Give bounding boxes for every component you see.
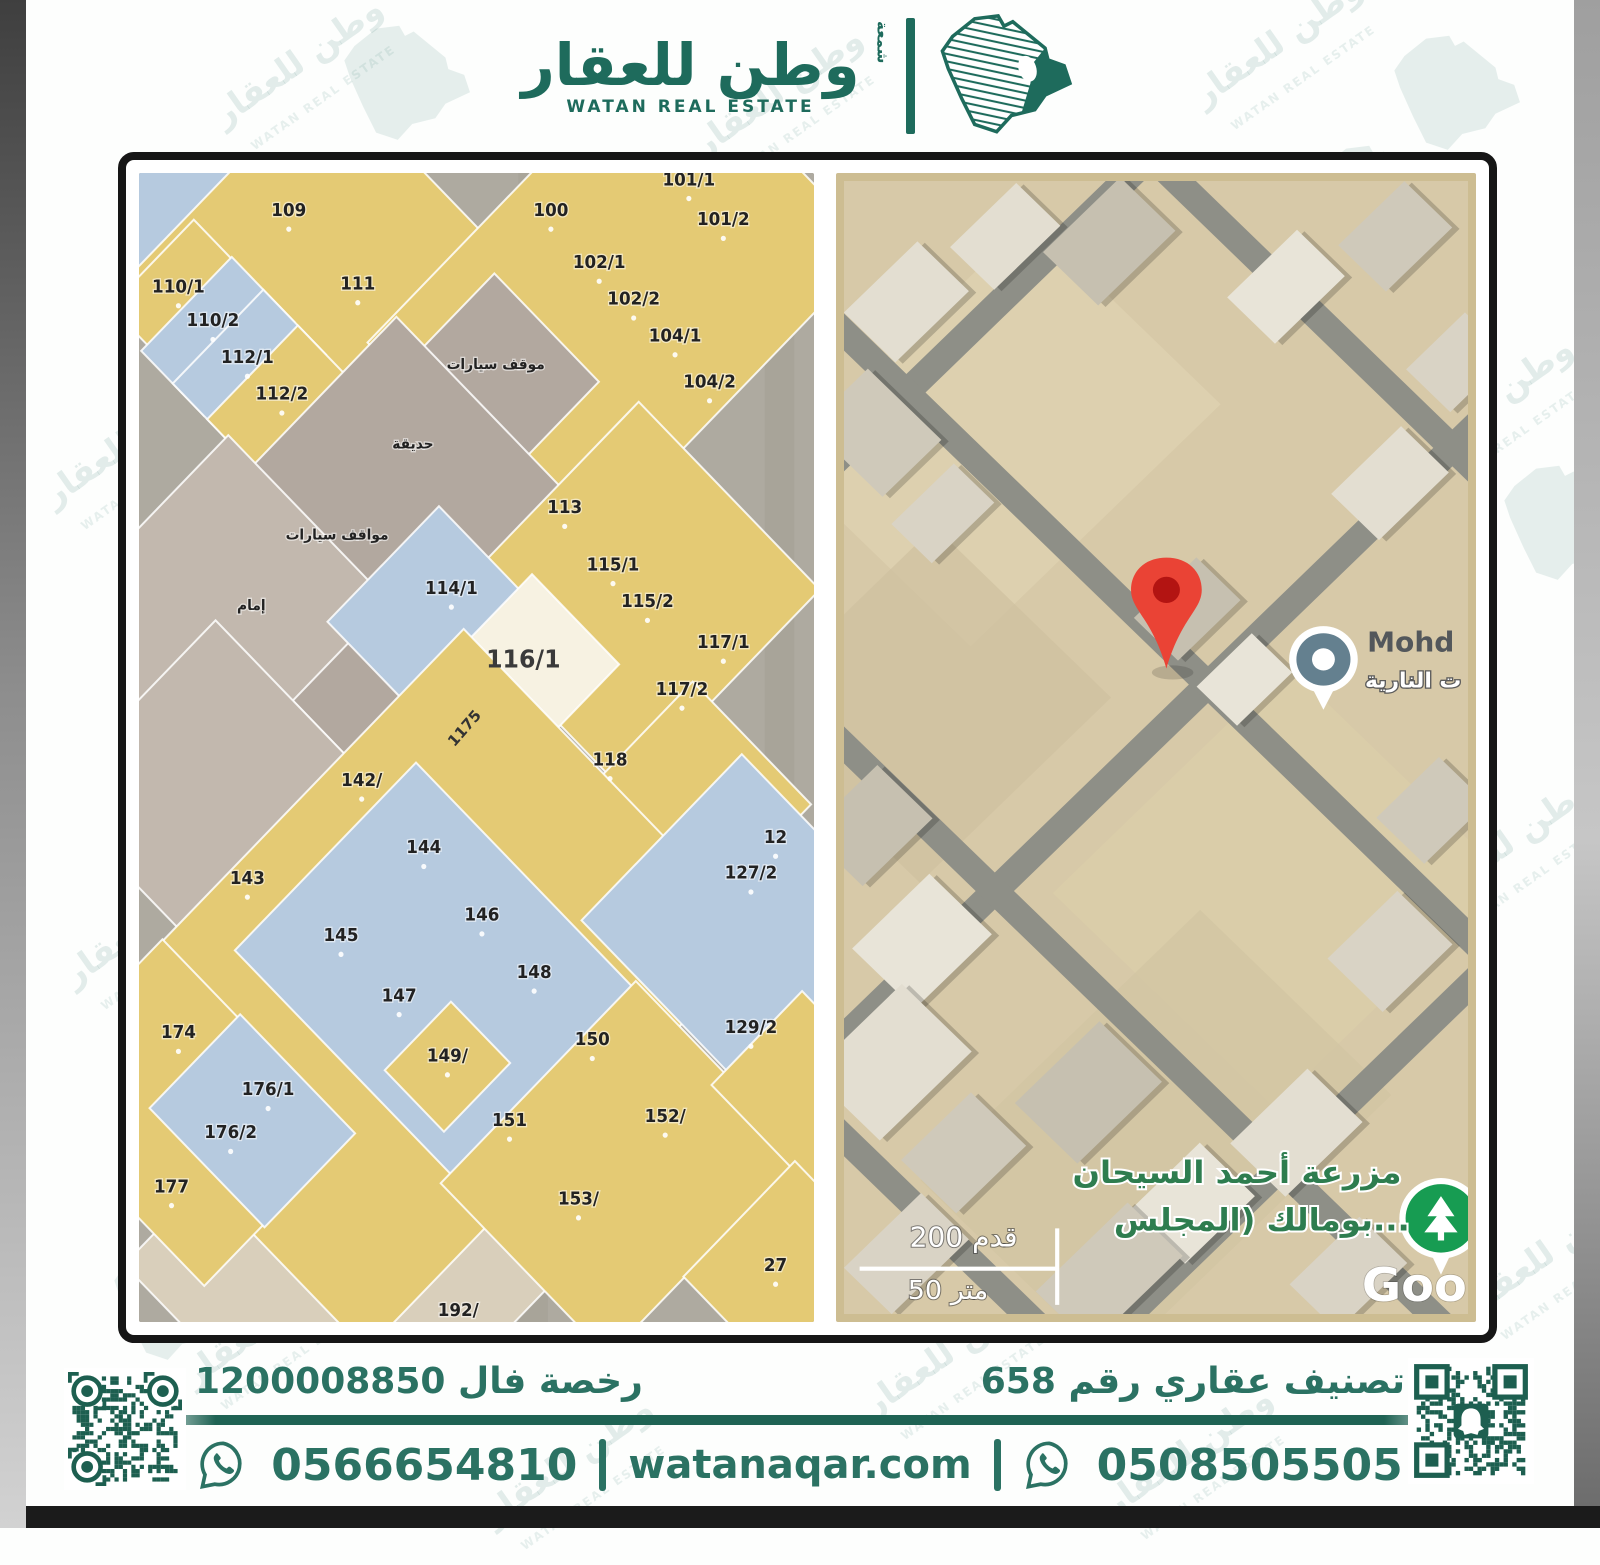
footer-row-info: رخصة فال 1200008850 تصنيف عقاري رقم 658: [26, 1361, 1574, 1402]
brand-english: WATAN REAL ESTATE: [521, 97, 859, 117]
parcel-label: 112/2: [256, 384, 309, 404]
phone-right: 0508505505: [1097, 1440, 1403, 1491]
parcel-label: 147: [382, 986, 417, 1006]
license-text: رخصة فال 1200008850: [195, 1361, 643, 1402]
parcel-label: 100: [533, 201, 568, 221]
parcel-label: 110/2: [187, 311, 240, 331]
saudi-map-logo: [929, 10, 1079, 142]
parcel-label: 101/1: [663, 173, 716, 190]
area-label: حديقة: [392, 437, 433, 453]
right-edge-strip: [1574, 0, 1600, 1528]
footer-divider: [136, 1415, 1464, 1425]
map-frame: 109100101/1101/2111110/1110/2112/1112/21…: [118, 152, 1497, 1343]
separator: [994, 1439, 1001, 1491]
parcel-label: 142/: [341, 771, 383, 791]
parcel-label: 114/1: [425, 579, 478, 599]
qr-code-left: [64, 1368, 186, 1490]
parcel-label: 110/1: [152, 277, 205, 297]
poi-label-en: Mohd: [1367, 626, 1454, 658]
parcel-label: 104/2: [683, 372, 736, 392]
satellite-map-border: Mohdت الناريةمزرعة أحمد السيحانبومالك (ا…: [836, 173, 1476, 1322]
parcel-label: 152/: [645, 1107, 687, 1127]
parcel-label: 117/1: [697, 633, 750, 653]
footer: رخصة فال 1200008850 تصنيف عقاري رقم 658 …: [26, 1343, 1574, 1506]
parcel-label: 150: [575, 1030, 610, 1050]
parcel-label: 111: [340, 274, 375, 294]
satellite-map: Mohdت الناريةمزرعة أحمد السيحانبومالك (ا…: [844, 181, 1468, 1314]
parcel-label: 127/2: [725, 863, 778, 883]
poi-label-ar: ت النارية: [1365, 669, 1461, 694]
scale-meters: 50 متر: [908, 1275, 989, 1305]
parcel-label: 116/1: [486, 645, 560, 673]
parcel-label: 174: [161, 1023, 196, 1043]
whatsapp-icon: [1023, 1439, 1075, 1491]
parcel-label: 113: [547, 498, 582, 518]
area-label: موقف سيارات: [447, 357, 545, 373]
parcel-label: 129/2: [725, 1018, 778, 1038]
classification-text: تصنيف عقاري رقم 658: [981, 1361, 1405, 1402]
parcel-label: 177: [154, 1177, 189, 1197]
area-label: مواقف سيارات: [286, 527, 389, 543]
parcel-label: 149/: [427, 1046, 469, 1066]
parcel-label: 151: [492, 1111, 527, 1131]
parcel-label: 117/2: [656, 680, 709, 700]
separator: [599, 1439, 606, 1491]
parcel-label: 144: [406, 838, 441, 858]
farm-label-line2: بومالك (المجلس...: [1114, 1203, 1410, 1238]
parcel-label: 176/2: [204, 1123, 257, 1143]
parcel-label: 145: [324, 926, 359, 946]
logo-vertical-text: شمعة: [874, 21, 892, 131]
parcel-label: 112/1: [221, 348, 274, 368]
logo-divider-bar: [906, 18, 915, 134]
parcel-label: 12: [764, 828, 787, 848]
parcel-label: 109: [271, 201, 306, 221]
google-logo: Goog: [1362, 1259, 1468, 1313]
parcel-label: 102/1: [573, 253, 626, 273]
scale-feet: 200 قدم: [910, 1221, 1018, 1253]
qr-code-snapchat: [1408, 1358, 1534, 1484]
parcel-label: 115/2: [621, 592, 674, 612]
whatsapp-icon: [197, 1439, 249, 1491]
parcel-label: 148: [517, 963, 552, 983]
brand-block: وطن للعقار WATAN REAL ESTATE: [521, 35, 859, 118]
brand-arabic: وطن للعقار: [521, 35, 859, 96]
footer-row-contacts: 0566654810 watanaqar.com 0508505505: [26, 1439, 1574, 1491]
parcel-label: 104/1: [649, 326, 702, 346]
website: watanaqar.com: [628, 1442, 971, 1488]
parcel-label: 143: [230, 869, 265, 889]
parcel-label: 192/: [438, 1301, 480, 1321]
parcel-label: 153/: [558, 1189, 600, 1209]
parcel-label: 102/2: [607, 289, 660, 309]
area-label: إمام: [237, 598, 266, 614]
parcel-label: 27: [764, 1256, 787, 1276]
parcel-label: 176/1: [242, 1080, 295, 1100]
bottom-black-bar: [26, 1506, 1600, 1528]
farm-label-line1: مزرعة أحمد السيحان: [1072, 1152, 1401, 1191]
header: وطن للعقار WATAN REAL ESTATE شمعة: [26, 0, 1574, 152]
parcel-label: 101/2: [697, 210, 750, 230]
parcel-label: 146: [464, 905, 499, 925]
parcel-map: 109100101/1101/2111110/1110/2112/1112/21…: [139, 173, 814, 1322]
left-edge-strip: [0, 0, 26, 1528]
phone-left: 0566654810: [271, 1440, 577, 1491]
parcel-label: 118: [593, 750, 628, 770]
parcel-label: 115/1: [587, 555, 640, 575]
